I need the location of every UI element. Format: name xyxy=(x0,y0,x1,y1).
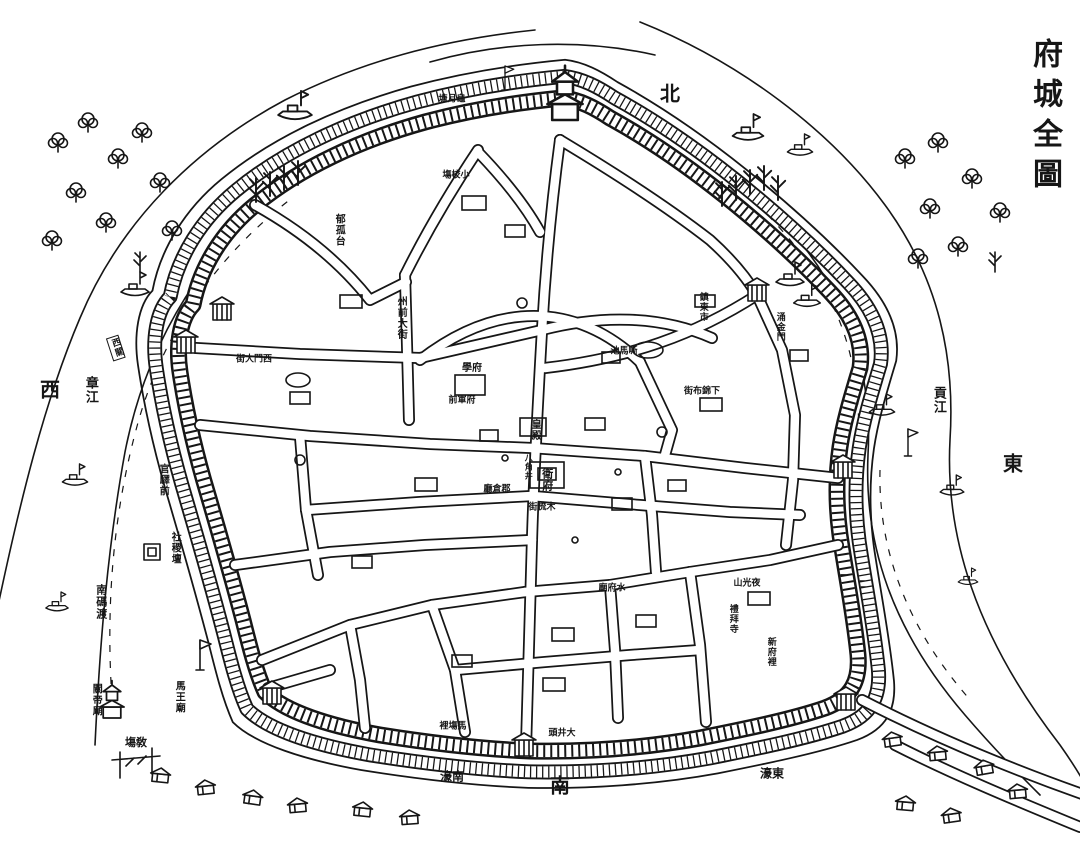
house-icon xyxy=(150,767,171,783)
altar-icon xyxy=(144,544,160,560)
tree1-icon xyxy=(163,221,182,240)
gate-icon xyxy=(512,733,536,756)
house-icon xyxy=(287,797,308,813)
house-icon xyxy=(242,789,264,806)
boat-icon xyxy=(787,134,812,155)
boat-icon xyxy=(62,464,87,485)
pond xyxy=(286,373,310,387)
house-icon xyxy=(940,807,962,824)
house-icon xyxy=(399,809,420,824)
boat-icon xyxy=(940,475,964,495)
map-title: 府城全圖 xyxy=(1022,38,1066,198)
moat xyxy=(136,60,897,788)
boat-icon xyxy=(121,272,149,296)
house-icon xyxy=(881,731,903,748)
tree2-icon xyxy=(989,252,1001,272)
tree1-icon xyxy=(109,149,128,168)
tree1-icon xyxy=(929,133,948,152)
flagpole-icon xyxy=(196,640,211,670)
house-icon xyxy=(195,779,216,795)
tree1-icon xyxy=(79,113,98,132)
boat-icon xyxy=(794,284,821,306)
house-icon xyxy=(895,795,916,811)
tree1-icon xyxy=(921,199,940,218)
tree1-icon xyxy=(963,169,982,188)
house-icon xyxy=(1007,783,1028,799)
street-network xyxy=(196,140,838,748)
boat-icon xyxy=(733,114,764,140)
map-canvas: 府城全圖 北西東南章江貢江南碼渡濠南濠東塲敎關帝廟馬王廟社稷壇官驛前西關塘月龜郁… xyxy=(0,0,1080,864)
flagpole-icon xyxy=(904,429,918,456)
pagoda-icon xyxy=(100,681,124,718)
north-far-bank xyxy=(430,44,655,62)
boat-icon xyxy=(958,568,978,584)
gate-icon xyxy=(210,297,234,320)
tree1-icon xyxy=(909,249,928,268)
tree1-icon xyxy=(97,213,116,232)
house-icon xyxy=(927,745,948,761)
house-icon xyxy=(352,801,373,817)
tree1-icon xyxy=(43,231,62,250)
tree1-icon xyxy=(896,149,915,168)
tree2-icon xyxy=(134,252,146,272)
tree1-icon xyxy=(949,237,968,256)
east-water-hatch2 xyxy=(880,470,972,702)
southeast-roads xyxy=(862,700,1080,827)
tree1-icon xyxy=(151,173,170,192)
tree2-icon xyxy=(757,166,771,190)
tree1-icon xyxy=(49,133,68,152)
boat-icon xyxy=(46,592,68,611)
map-drawing xyxy=(0,0,1080,864)
boat-icon xyxy=(776,262,804,286)
tree1-icon xyxy=(133,123,152,142)
tree2-icon xyxy=(771,176,785,200)
tree1-icon xyxy=(67,183,86,202)
tree1-icon xyxy=(991,203,1010,222)
